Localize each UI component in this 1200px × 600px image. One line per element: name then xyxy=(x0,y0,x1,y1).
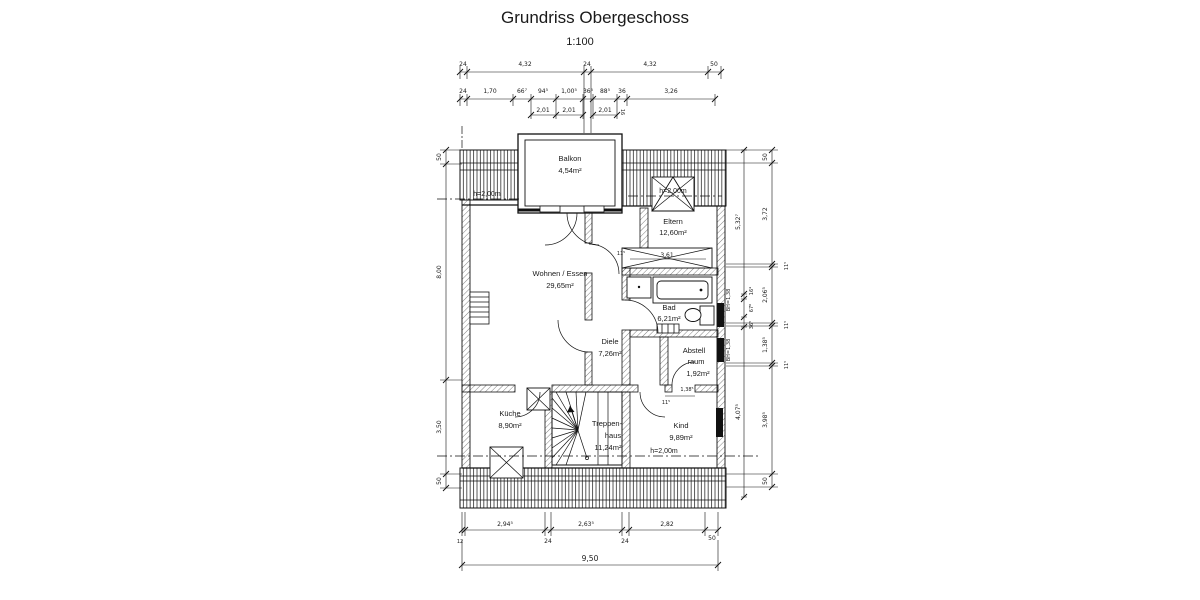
dim-left-3: 50 xyxy=(436,477,443,485)
dim-right-outer-0: 50 xyxy=(762,153,769,161)
washbasin xyxy=(627,277,651,298)
floorplan-drawing: Grundriss Obergeschoss 1:100 Balkon 4,54… xyxy=(0,0,1200,600)
dim-top-sub-2: 2,01 xyxy=(598,107,612,114)
dim-top2-2: 66⁷ xyxy=(517,88,528,95)
room-treppenhaus-line1: Treppen- xyxy=(592,419,623,428)
dim-top2-8: 3,26 xyxy=(664,88,678,95)
room-diele-area: 7,26m² xyxy=(598,349,622,358)
dim-top1-2: 24 xyxy=(583,61,591,68)
kind-window xyxy=(716,408,723,437)
room-abstell-area: 1,92m² xyxy=(686,369,710,378)
dim-top1-3: 4,32 xyxy=(643,61,657,68)
dim-right-outer-8: 50 xyxy=(762,477,769,485)
dim-top2-5: 36⁵ xyxy=(583,88,594,95)
floorplan-page: Grundriss Obergeschoss 1:100 Balkon 4,54… xyxy=(0,0,1200,600)
dim-top2-0: 24 xyxy=(459,88,467,95)
dim-bottom-small-2: 24 xyxy=(621,538,629,545)
corridor-door xyxy=(589,244,619,274)
staircase xyxy=(552,392,622,465)
dim-bottom-2: 2,82 xyxy=(660,521,674,528)
room-treppenhaus-line2: haus xyxy=(605,431,622,440)
room-abstell-line1: Abstell xyxy=(683,346,706,355)
room-balkon-area: 4,54m² xyxy=(558,166,582,175)
dim-kind-door: 1,38⁵ xyxy=(680,387,693,393)
dim-left-1: 8,00 xyxy=(436,265,443,279)
height-label-left: h=2,00m xyxy=(473,191,501,198)
dim-top2-6: 88⁵ xyxy=(600,88,611,95)
window-sill-label-0: BH=1,38 xyxy=(726,289,732,312)
dim-right-inner-2: 67⁶ xyxy=(749,304,755,312)
dim-top2-7: 36 xyxy=(618,88,626,95)
room-eltern-area: 12,60m² xyxy=(659,228,687,237)
wohnen-door xyxy=(558,320,588,352)
room-kueche-area: 8,90m² xyxy=(498,421,522,430)
dim-bottom-small-1: 24 xyxy=(544,538,552,545)
dim-right-outer-1: 3,72 xyxy=(762,207,769,221)
dim-top2-3: 94⁵ xyxy=(538,88,549,95)
dim-bottom-1: 2,63⁵ xyxy=(578,521,594,528)
roof-window-kueche xyxy=(490,447,523,478)
radiator-bad xyxy=(657,324,679,333)
radiator-wohnen xyxy=(470,292,489,324)
dim-right-outer-4: 11⁵ xyxy=(784,321,790,329)
dim-right-inner-0: 5,32⁷ xyxy=(735,214,742,230)
room-kind-area: 9,89m² xyxy=(669,433,693,442)
window-sill-label-1: BH=1,38 xyxy=(726,339,732,362)
dim-left-0: 50 xyxy=(436,153,443,161)
scale-label: 1:100 xyxy=(566,36,594,48)
dim-left-2: 3,50 xyxy=(436,420,443,434)
dim-top1-0: 24 xyxy=(459,61,467,68)
dim-closet-wall: 11⁵ xyxy=(617,251,625,257)
room-kind-name: Kind xyxy=(673,421,688,430)
toilet xyxy=(685,306,714,325)
dim-right-inner-3: 36⁵ xyxy=(749,321,755,329)
balcony-door-right xyxy=(567,213,599,245)
dim-bottom-small-0: 12 xyxy=(457,539,463,545)
height-label-bottom: h=2,00m xyxy=(650,448,678,455)
roof-window-diele xyxy=(527,388,550,410)
dim-top-sub-1: 2,01 xyxy=(562,107,576,114)
room-diele-name: Diele xyxy=(601,337,618,346)
height-label-right-top: h=2,00m xyxy=(659,188,687,195)
dim-kind-door-wall: 11⁵ xyxy=(662,400,670,406)
room-balkon-name: Balkon xyxy=(559,154,582,163)
balcony-door-left xyxy=(545,213,577,245)
dim-top1-1: 4,32 xyxy=(518,61,532,68)
bad-window xyxy=(717,303,724,327)
dim-right-inner-4: 4,07⁵ xyxy=(735,404,742,420)
dim-right-outer-7: 3,98⁵ xyxy=(762,412,769,428)
dim-right-outer-6: 11⁵ xyxy=(784,361,790,369)
dim-closet-width: 3,61 xyxy=(660,252,674,259)
dim-bottom-0: 2,94⁵ xyxy=(497,521,513,528)
bad-door xyxy=(625,300,658,333)
page-title: Grundriss Obergeschoss xyxy=(501,8,689,27)
dim-top2-1: 1,70 xyxy=(483,88,497,95)
dim-top-sub-0: 2,01 xyxy=(536,107,550,114)
dim-top2-4: 1,00⁵ xyxy=(561,88,577,95)
room-wohnen-name: Wohnen / Essen xyxy=(533,269,588,278)
dim-top1-4: 50 xyxy=(710,61,718,68)
room-bad-area: 6,21m² xyxy=(657,314,681,323)
dim-bottom-total: 9,50 xyxy=(582,554,599,563)
dim-right-outer-3: 2,06⁵ xyxy=(762,287,769,303)
room-kueche-name: Küche xyxy=(499,409,520,418)
room-eltern-name: Eltern xyxy=(663,217,683,226)
dim-right-outer-5: 1,38⁵ xyxy=(762,337,769,353)
dim-bottom-small-3: 50 xyxy=(708,535,716,542)
bathtub xyxy=(653,277,712,303)
dim-top-sub-3: 16 xyxy=(619,109,625,115)
room-treppenhaus-area: 11,24m² xyxy=(595,443,622,452)
room-abstell-line2: raum xyxy=(687,357,704,366)
dim-right-outer-2: 11⁵ xyxy=(784,262,790,270)
room-bad-name: Bad xyxy=(662,303,675,312)
room-wohnen-area: 29,65m² xyxy=(546,281,574,290)
dim-right-inner-1: 16⁴ xyxy=(749,287,755,295)
abstell-window xyxy=(717,338,724,362)
